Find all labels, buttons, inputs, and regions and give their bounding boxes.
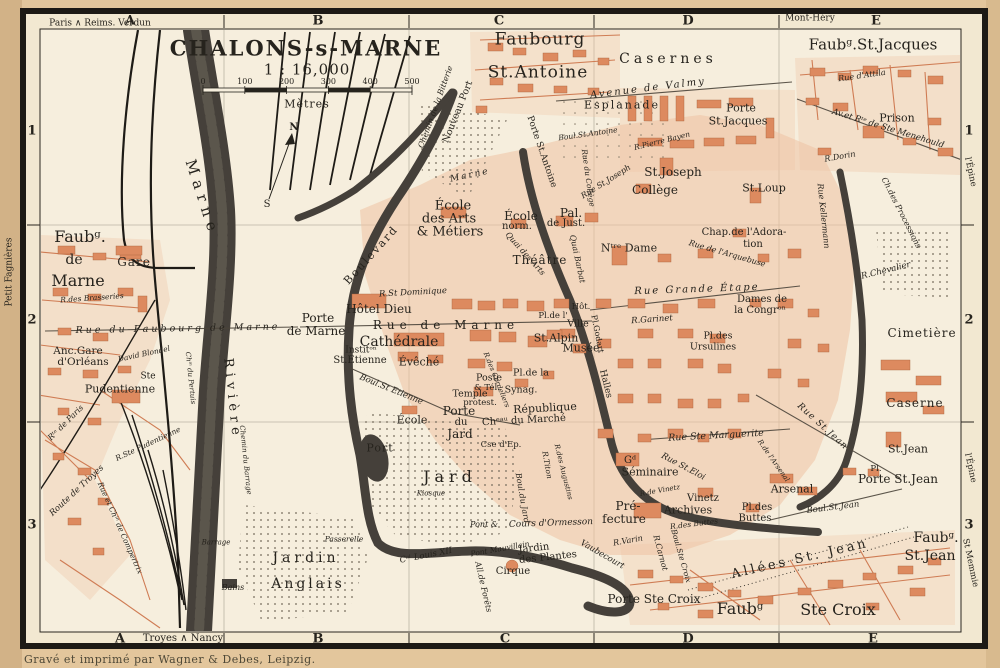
map-sheet: CHALONS-s-MARNE 1 : 16,000 Mètres Gravé … (0, 0, 1000, 668)
map-artwork (0, 0, 1000, 668)
